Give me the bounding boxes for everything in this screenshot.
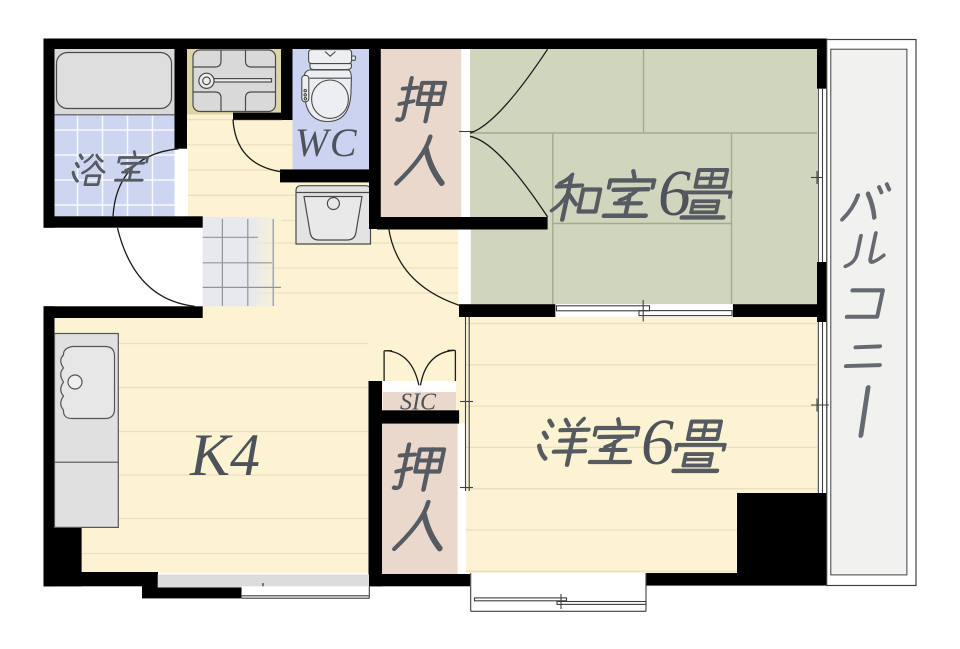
svg-text:WC: WC [295,120,358,165]
svg-text:SIC: SIC [400,390,437,416]
svg-text:6: 6 [641,406,674,479]
svg-text:K4: K4 [189,422,260,488]
